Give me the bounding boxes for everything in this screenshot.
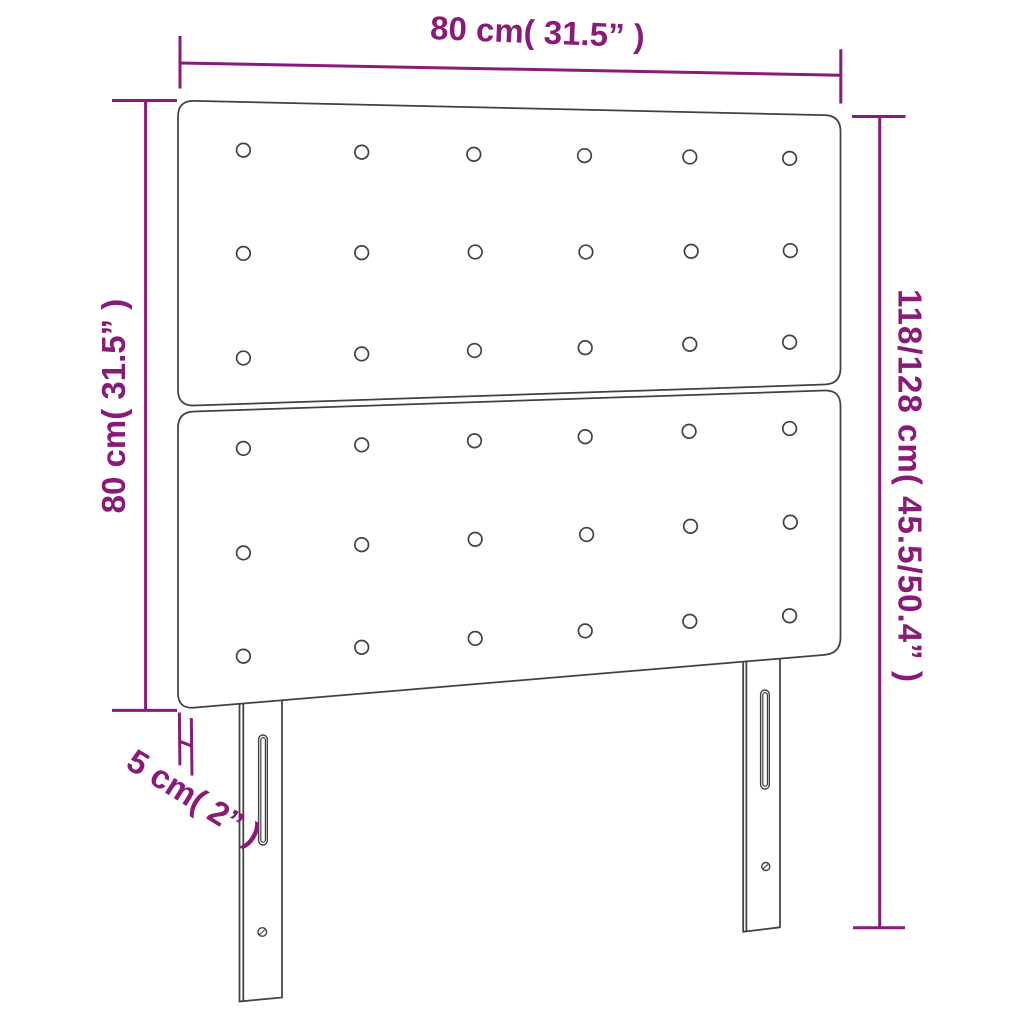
svg-text:118/128 cm( 45.5/50.4” ): 118/128 cm( 45.5/50.4” ) <box>892 289 929 683</box>
svg-text:80 cm( 31.5” ): 80 cm( 31.5” ) <box>95 299 132 514</box>
